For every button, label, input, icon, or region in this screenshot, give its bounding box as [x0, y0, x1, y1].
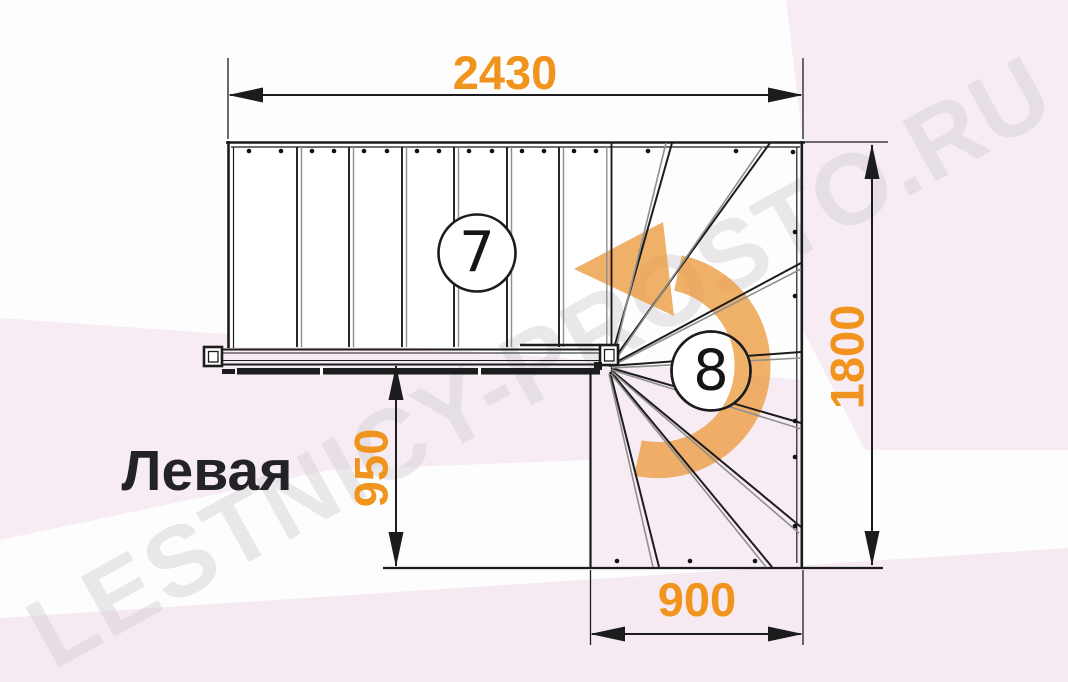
dimension-mid-value: 950: [345, 429, 398, 507]
staircase-plan-page: LESTNICY-PROSTO.RU: [0, 0, 1068, 682]
step-count-winder-value: 8: [693, 339, 729, 404]
dimension-bottom-value: 900: [658, 573, 736, 626]
dim-arrow-left-icon: [228, 88, 263, 103]
orientation-label: Левая: [122, 439, 293, 503]
staircase-plan-drawing: LESTNICY-PROSTO.RU: [0, 0, 1068, 682]
dimension-right-value: 1800: [821, 305, 874, 410]
handrail-assembly: [204, 345, 618, 376]
dimension-top-value: 2430: [453, 46, 558, 99]
step-count-straight-badge: 7: [439, 215, 516, 292]
newel-post-left: [204, 347, 222, 366]
dimension-top: 2430: [228, 46, 803, 139]
stringer-bar: [237, 368, 600, 375]
dim-arrow-down-icon: [389, 532, 404, 567]
step-count-straight-value: 7: [459, 221, 495, 286]
